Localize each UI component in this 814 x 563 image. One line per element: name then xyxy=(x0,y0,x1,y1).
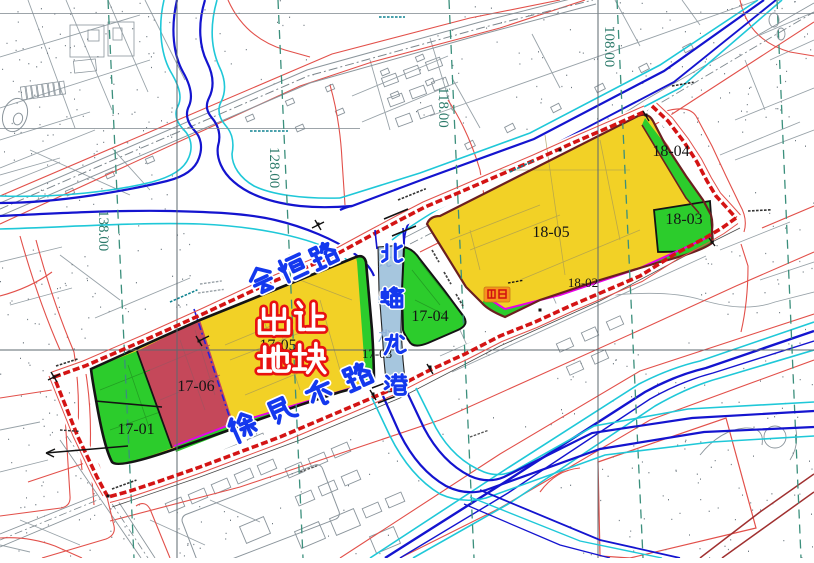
svg-text:18-02: 18-02 xyxy=(568,275,598,290)
svg-text:17-04: 17-04 xyxy=(411,308,448,325)
svg-text:138.00: 138.00 xyxy=(95,210,111,251)
svg-text:128.00: 128.00 xyxy=(266,147,282,188)
svg-text:18-04: 18-04 xyxy=(652,143,689,160)
svg-text:118.00: 118.00 xyxy=(435,87,451,128)
svg-text:108.00: 108.00 xyxy=(601,26,617,67)
svg-text:17-06: 17-06 xyxy=(177,378,214,395)
svg-text:18-05: 18-05 xyxy=(532,224,569,241)
svg-text:18-03: 18-03 xyxy=(665,211,702,228)
svg-text:17-01: 17-01 xyxy=(117,421,154,438)
